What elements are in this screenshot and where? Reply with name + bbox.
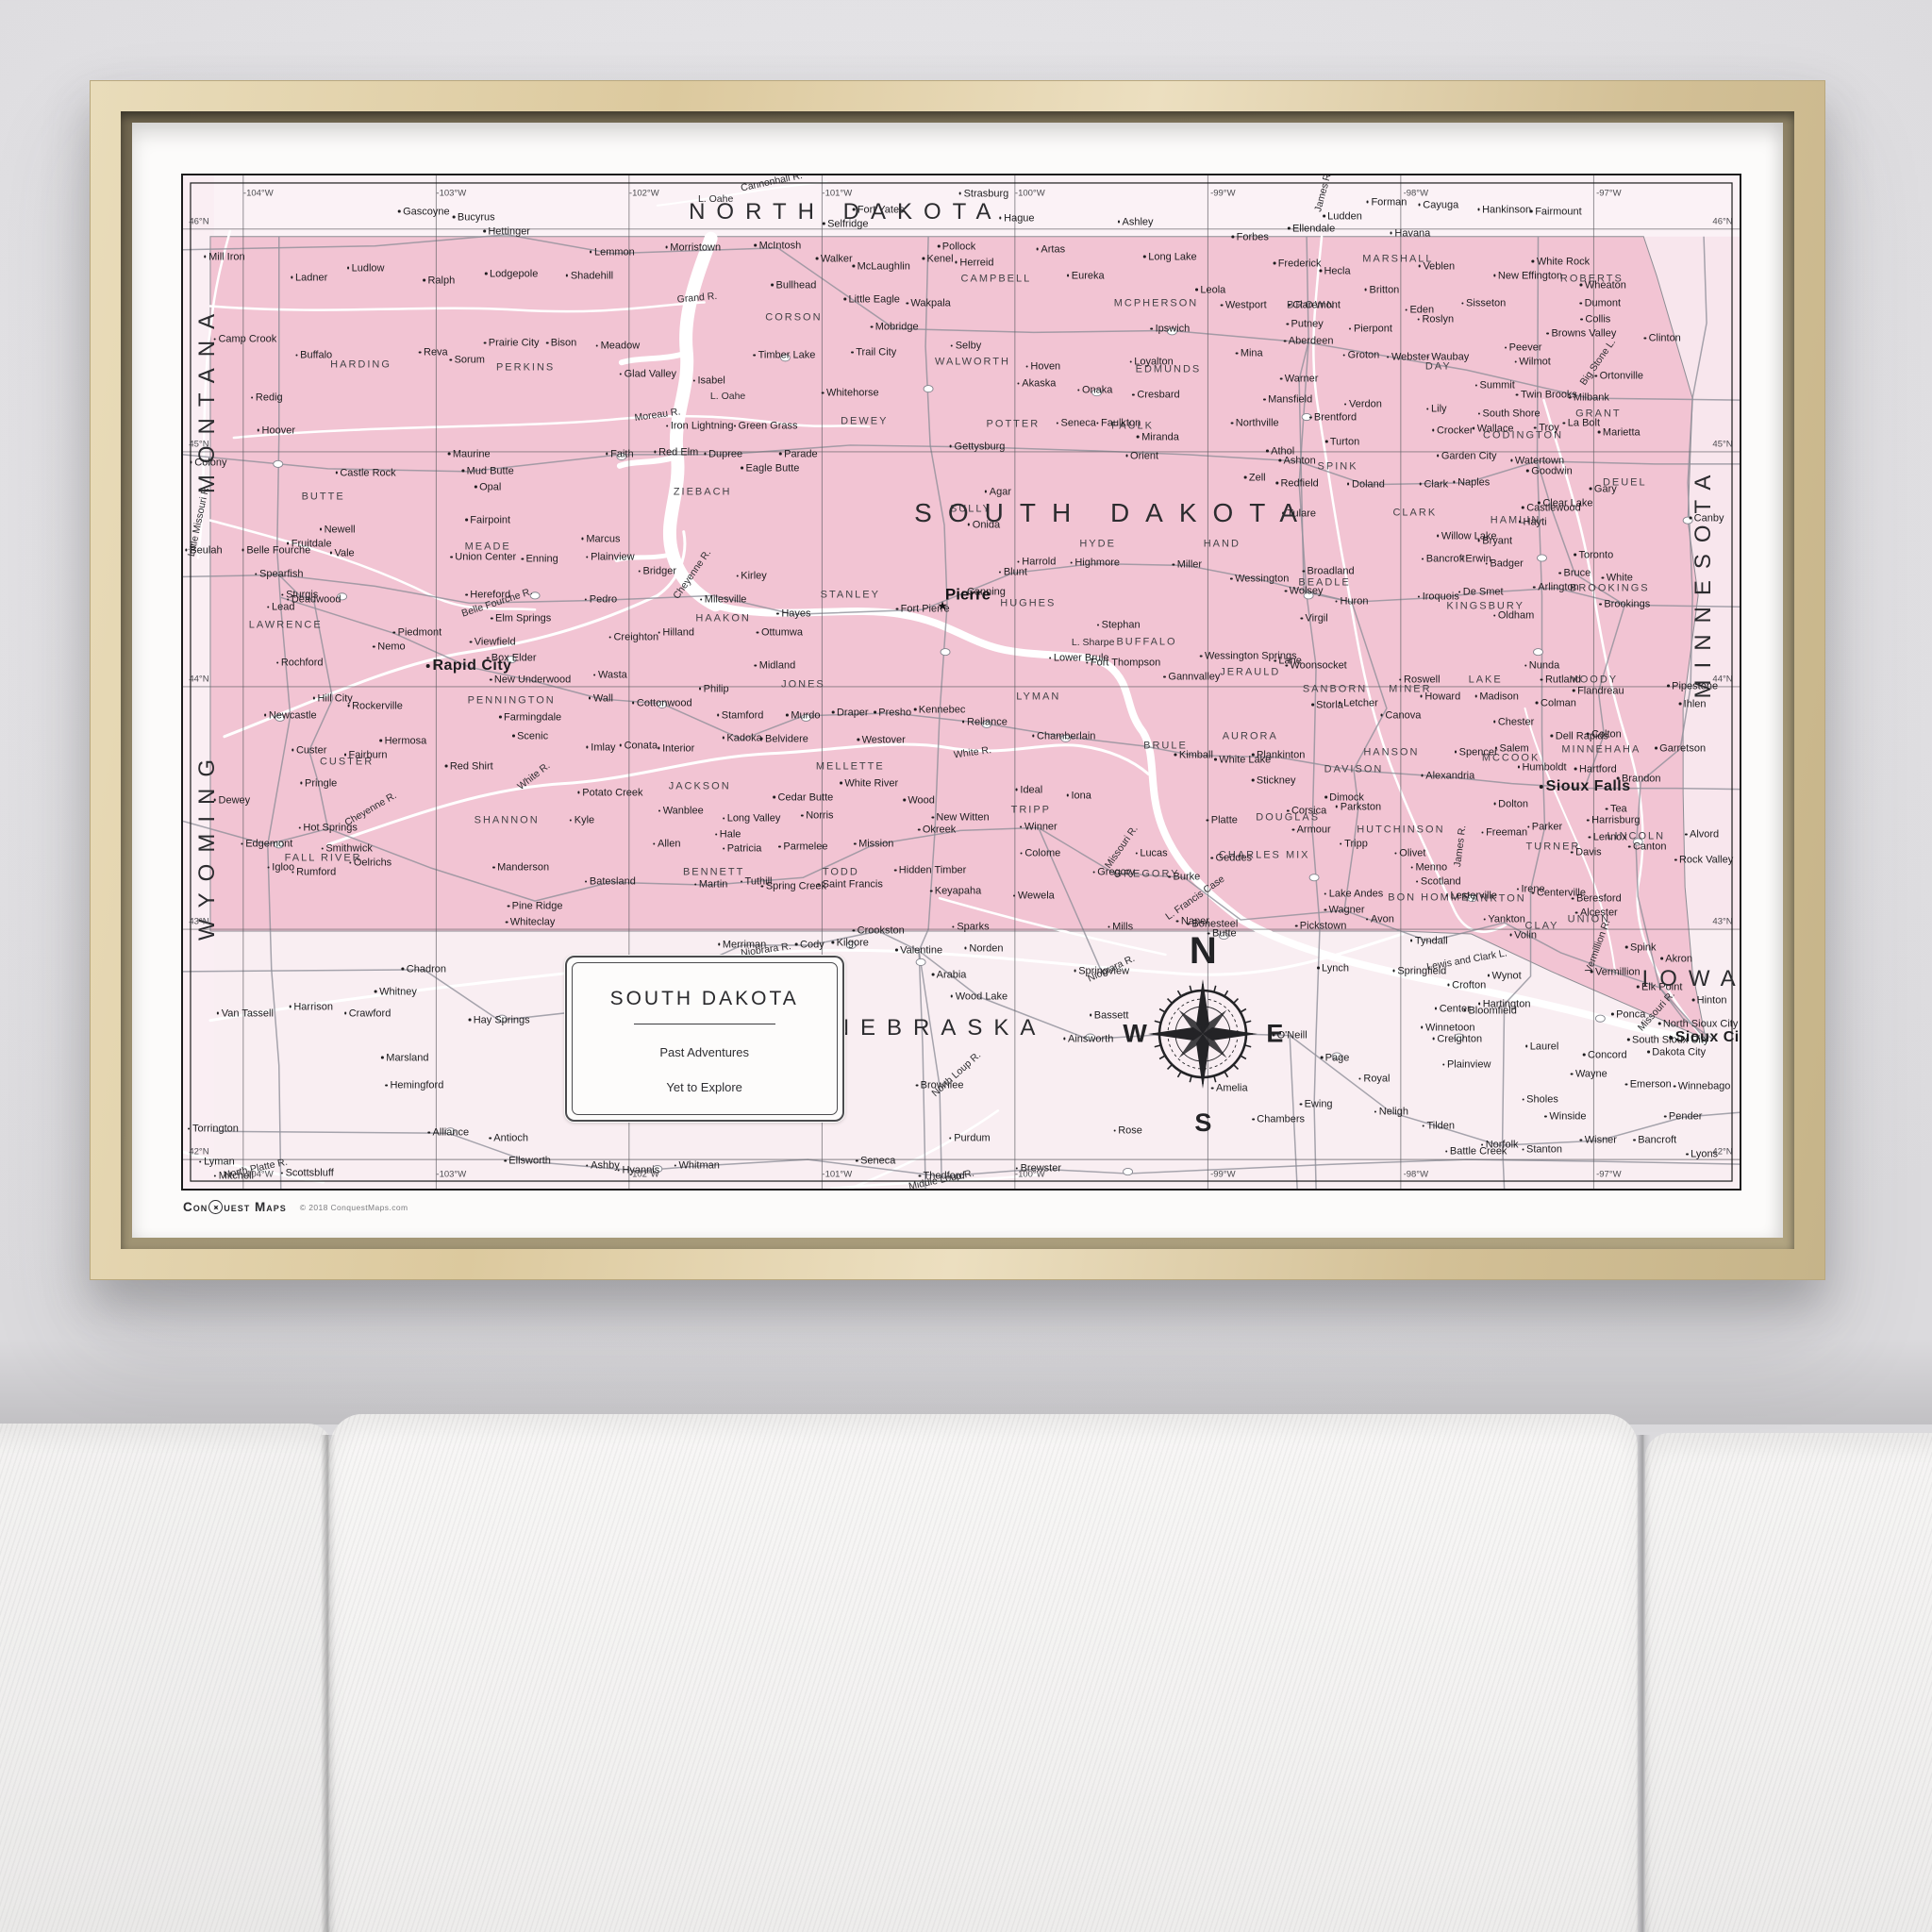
- town-label: Northville: [1231, 419, 1279, 429]
- town-label: Hilland: [658, 628, 694, 639]
- town-label: Saint Francis: [818, 880, 883, 891]
- town-label: Rutland: [1541, 675, 1581, 686]
- town-label: Draper: [832, 708, 869, 718]
- brand-name-left: Con: [183, 1200, 208, 1214]
- town-label: Winnetoon: [1421, 1023, 1475, 1033]
- county-label: CAMPBELL: [961, 274, 1032, 284]
- town-label: Walker: [816, 254, 853, 264]
- town-label: Wilmot: [1514, 358, 1551, 368]
- town-label: Webster: [1387, 353, 1430, 363]
- water-label: James R.: [1313, 174, 1334, 213]
- compass-icon: [208, 1200, 223, 1214]
- town-label: Keyapaha: [930, 887, 982, 897]
- map-canvas: HARDINGPERKINSCORSONCAMPBELLMCPHERSONBRO…: [132, 123, 1783, 1238]
- longitude-label: -99°W: [1210, 1170, 1236, 1179]
- town-label: Bridger: [639, 567, 676, 577]
- water-label: Grand R.: [676, 291, 717, 304]
- town-label: Cayuga: [1418, 200, 1458, 210]
- town-label: Vermillion: [1591, 967, 1641, 977]
- town-label: Murdo: [786, 710, 820, 721]
- county-label: CORSON: [765, 313, 822, 324]
- town-label: Forbes: [1232, 232, 1269, 242]
- town-label: Groton: [1343, 351, 1380, 361]
- county-label: JERAULD: [1220, 668, 1280, 678]
- town-label: Peever: [1505, 343, 1542, 354]
- town-label: Interior: [658, 743, 694, 754]
- water-label: James R.: [1453, 825, 1468, 868]
- town-label: Lily: [1426, 405, 1447, 415]
- town-label: Ainsworth: [1063, 1034, 1113, 1044]
- town-label: Claremont: [1288, 301, 1341, 311]
- town-label: Scenic: [512, 731, 548, 741]
- town-label: Tea: [1606, 805, 1627, 815]
- town-label: Arabia: [932, 970, 967, 980]
- town-label: New Witten: [931, 813, 989, 824]
- town-label: La Bolt: [1563, 419, 1600, 429]
- state-label: NEBRASKA: [833, 1017, 1047, 1040]
- longitude-label: -102°W: [629, 189, 659, 198]
- town-label: Selby: [951, 341, 982, 352]
- town-label: Wasta: [593, 671, 627, 681]
- town-label: Buffalo: [295, 351, 332, 361]
- town-label: Belvidere: [760, 734, 808, 744]
- town-label: Sisseton: [1461, 299, 1506, 309]
- town-label: Westover: [858, 735, 906, 745]
- town-label: Enning: [521, 555, 558, 565]
- town-label: Torrington: [188, 1124, 239, 1135]
- town-label: Eagle Butte: [741, 463, 800, 474]
- water-label: White R.: [516, 760, 552, 791]
- town-label: Chamberlain: [1032, 731, 1095, 741]
- couch-cushion-left: [0, 1424, 332, 1932]
- county-label: JACKSON: [669, 781, 731, 791]
- town-label: Stephan: [1097, 621, 1141, 631]
- town-label: Bison: [546, 339, 577, 349]
- town-label: Yankton: [1483, 915, 1525, 925]
- town-label: Presho: [874, 708, 911, 718]
- town-label: Cedar Butte: [774, 792, 834, 803]
- town-label: Timber Lake: [754, 351, 816, 361]
- town-label: Athol: [1266, 446, 1294, 457]
- town-label: Allen: [653, 840, 680, 850]
- town-label: Tyndall: [1410, 936, 1448, 946]
- town-label: Ellendale: [1288, 224, 1335, 234]
- town-label: McIntosh: [755, 241, 802, 251]
- town-label: Howard: [1420, 691, 1460, 702]
- town-label: Bancroft: [1422, 555, 1465, 565]
- town-label: Britton: [1365, 285, 1400, 295]
- town-label: Wanblee: [658, 807, 704, 817]
- town-label: Armour: [1292, 825, 1331, 836]
- town-label: Platte: [1207, 816, 1238, 826]
- longitude-label: -101°W: [822, 1170, 852, 1179]
- county-label: HAAKON: [695, 614, 750, 625]
- town-label: Loyalton: [1129, 358, 1174, 368]
- brand-name-right: uest Maps: [224, 1200, 287, 1214]
- town-label: Reliance: [962, 717, 1008, 727]
- water-label: White R.: [953, 745, 991, 760]
- town-label: Lake Andes: [1324, 890, 1384, 900]
- latitude-label: 42°N: [1712, 1147, 1732, 1157]
- town-label: Cresbard: [1132, 391, 1179, 401]
- county-label: LAKE: [1469, 675, 1503, 686]
- cushion-seam-left: [321, 1435, 336, 1932]
- town-label: Brookings: [1599, 600, 1650, 610]
- town-label: Wagner: [1324, 906, 1364, 916]
- water-label: L. Sharpe: [1072, 638, 1115, 648]
- town-label: Oldham: [1493, 611, 1535, 622]
- town-label: Highmore: [1070, 558, 1120, 569]
- town-label: Wewela: [1013, 891, 1055, 902]
- water-label: L. Oahe: [710, 391, 745, 402]
- water-label: Missouri R.: [1103, 824, 1140, 871]
- title-divider: [634, 1024, 775, 1025]
- town-label: Chadron: [402, 964, 446, 974]
- town-label: Antioch: [489, 1134, 528, 1144]
- brand-copyright: © 2018 ConquestMaps.com: [300, 1203, 408, 1212]
- town-label: Mud Butte: [462, 466, 514, 476]
- town-label: Rochford: [276, 658, 324, 669]
- longitude-label: -103°W: [436, 1170, 466, 1179]
- town-label: Verdon: [1344, 400, 1382, 410]
- town-label: Doland: [1347, 479, 1385, 490]
- town-label: Bryant: [1477, 536, 1512, 546]
- longitude-label: -98°W: [1404, 1170, 1429, 1179]
- town-label: White River: [840, 778, 898, 789]
- town-label: De Smet: [1458, 588, 1504, 598]
- town-label: Valentine: [895, 945, 942, 956]
- town-label: Farmingdale: [499, 712, 561, 723]
- town-label: Frederick: [1274, 258, 1322, 269]
- county-label: PERKINS: [496, 363, 555, 374]
- longitude-label: -102°W: [629, 1170, 659, 1179]
- town-label: Avon: [1366, 915, 1394, 925]
- town-label: Hayti: [1519, 517, 1547, 527]
- county-label: HARDING: [330, 360, 391, 371]
- town-label: Sparks: [952, 923, 989, 933]
- town-label: Clark: [1419, 479, 1448, 490]
- town-label: Hidden Timber: [894, 866, 967, 876]
- couch: [0, 1410, 1932, 1932]
- county-label: AURORA: [1223, 731, 1278, 741]
- town-label: Reva: [419, 348, 448, 358]
- town-label: Dakota City: [1647, 1047, 1706, 1058]
- town-label: Colome: [1020, 849, 1060, 859]
- town-label: Woonsocket: [1285, 661, 1346, 672]
- town-label: Wood Lake: [951, 991, 1008, 1002]
- town-label: Shadehill: [566, 271, 613, 281]
- town-label: Sorum: [450, 356, 485, 366]
- frame-floater-gap: HARDINGPERKINSCORSONCAMPBELLMCPHERSONBRO…: [121, 111, 1794, 1249]
- latitude-label: 45°N: [189, 440, 208, 449]
- town-label: Norden: [964, 943, 1003, 954]
- town-label: Burke: [1169, 873, 1201, 883]
- town-label: Wood: [903, 795, 935, 806]
- town-label: Marcus: [581, 534, 620, 544]
- town-label: Meadow: [596, 341, 641, 352]
- town-label: Ashby: [586, 1161, 620, 1172]
- town-label: Plainview: [1442, 1060, 1491, 1071]
- town-label: Pickstown: [1295, 922, 1347, 932]
- town-label: Hermosa: [380, 736, 427, 746]
- water-label: Lewis and Clark L.: [1425, 948, 1507, 972]
- town-label: Imlay: [586, 742, 615, 753]
- town-label: Alcester: [1575, 908, 1618, 919]
- town-label: Brentford: [1309, 413, 1357, 424]
- town-label: North Sioux City: [1658, 1019, 1738, 1029]
- town-label: Ashley: [1118, 217, 1154, 227]
- county-label: BUFFALO: [1116, 638, 1176, 648]
- county-label: HUTCHINSON: [1357, 825, 1444, 836]
- town-label: Faith: [606, 449, 633, 459]
- town-label: Martin: [694, 880, 728, 891]
- town-label: Chester: [1493, 717, 1535, 727]
- town-label: Clinton: [1644, 334, 1681, 344]
- town-label: Milesville: [700, 595, 747, 606]
- longitude-label: -100°W: [1015, 189, 1045, 198]
- town-label: Miranda: [1137, 432, 1179, 442]
- county-label: HAND: [1204, 539, 1241, 549]
- town-label: Edgemont: [241, 840, 292, 850]
- town-label: Badger: [1485, 559, 1523, 570]
- town-label: Letcher: [1339, 698, 1378, 708]
- town-label: Morristown: [665, 242, 721, 253]
- town-label: Winnebago: [1674, 1082, 1731, 1092]
- town-label: Veblen: [1418, 261, 1455, 272]
- town-label: Gregory: [1092, 868, 1135, 878]
- town-label: Wessington: [1230, 575, 1289, 585]
- town-label: Crookston: [853, 926, 905, 937]
- town-label: Winner: [1020, 823, 1058, 833]
- town-label: Page: [1321, 1053, 1350, 1063]
- town-label: Rock Valley: [1674, 856, 1733, 866]
- town-label: Whitehorse: [822, 389, 879, 399]
- town-label: Ideal: [1015, 785, 1042, 795]
- town-label: Kadoka: [722, 733, 761, 743]
- town-label: Bruce: [1559, 569, 1591, 579]
- town-label: Iona: [1066, 791, 1091, 801]
- town-label: Artas: [1036, 244, 1065, 255]
- town-label: Ladner: [291, 273, 327, 283]
- town-label: Laurel: [1525, 1041, 1559, 1052]
- town-label: Iroquois: [1418, 592, 1459, 603]
- town-label: Virgil: [1300, 614, 1327, 625]
- town-label: Bancroft: [1633, 1136, 1676, 1146]
- county-label: MELLETTE: [816, 761, 885, 772]
- town-label: Strasburg: [959, 189, 1009, 199]
- longitude-label: -100°W: [1015, 1170, 1045, 1179]
- town-label: Castlewood: [1522, 503, 1580, 513]
- town-label: New Underwood: [490, 675, 571, 686]
- county-label: SPINK: [1318, 461, 1358, 472]
- county-label: POTTER: [987, 420, 1041, 430]
- map-title: SOUTH DAKOTA: [610, 988, 799, 1010]
- town-label: Scottsbluff: [281, 1169, 334, 1179]
- town-label: Sioux City: [1669, 1030, 1741, 1045]
- town-label: Lucas: [1135, 849, 1167, 859]
- town-label: Ludlow: [347, 263, 385, 274]
- town-label: Naper: [1176, 917, 1209, 927]
- state-label: IOWA: [1642, 968, 1741, 991]
- town-label: Parkston: [1336, 802, 1381, 812]
- town-label: Kyle: [570, 816, 594, 826]
- town-label: Philip: [699, 684, 729, 694]
- town-label: Geddes: [1211, 854, 1253, 864]
- couch-cushion-right: [1645, 1433, 1932, 1932]
- town-label: Lemmon: [590, 247, 635, 258]
- longitude-label: -103°W: [436, 189, 466, 198]
- town-label: Nemo: [373, 642, 405, 653]
- town-label: Fairburn: [344, 750, 388, 760]
- longitude-label: -97°W: [1596, 1170, 1622, 1179]
- town-label: Davis: [1571, 848, 1602, 858]
- state-label: WYOMING: [196, 748, 219, 941]
- county-label: BROOKINGS: [1570, 584, 1650, 594]
- town-label: Hemingford: [385, 1081, 443, 1091]
- town-label: Sholes: [1522, 1095, 1558, 1106]
- town-label: Parade: [779, 449, 817, 459]
- town-label: Stanton: [1522, 1145, 1562, 1156]
- town-label: South Shore: [1478, 409, 1541, 420]
- town-label: Browns Valley: [1546, 329, 1616, 340]
- town-label: Roslyn: [1417, 315, 1454, 325]
- town-label: Marietta: [1598, 427, 1641, 438]
- town-label: Warner: [1280, 375, 1319, 385]
- town-label: Manderson: [492, 863, 549, 874]
- town-label: Isabel: [692, 376, 724, 387]
- legend-yet-to-explore: Yet to Explore: [666, 1080, 741, 1094]
- town-label: New Effington: [1493, 271, 1562, 281]
- town-label: Gary: [1590, 484, 1617, 494]
- town-label: Putney: [1286, 320, 1323, 330]
- town-label: Trail City: [851, 348, 896, 358]
- town-label: Cody: [795, 940, 824, 950]
- county-label: TRIPP: [1011, 806, 1051, 816]
- town-label: Bucyrus: [453, 212, 495, 223]
- town-label: Spearfish: [255, 570, 303, 580]
- county-label: SHANNON: [475, 816, 540, 826]
- town-label: Fairpoint: [465, 515, 510, 525]
- compass-rose: N S W E: [1123, 930, 1283, 1138]
- town-label: Akaska: [1017, 379, 1056, 390]
- town-label: Potato Creek: [577, 788, 642, 798]
- county-label: SANBORN: [1303, 684, 1367, 694]
- town-label: Gannvalley: [1163, 673, 1220, 683]
- town-label: Kilgore: [832, 938, 869, 948]
- town-label: Newell: [320, 525, 356, 535]
- town-label: Castle Rock: [335, 468, 395, 478]
- town-label: Neligh: [1374, 1108, 1408, 1118]
- town-label: Hoover: [258, 425, 295, 436]
- town-label: Mission: [854, 840, 893, 850]
- capital-label: Pierre: [945, 587, 991, 603]
- town-label: Lead: [267, 603, 294, 613]
- town-label: Ralph: [423, 275, 455, 286]
- latitude-label: 46°N: [189, 217, 208, 226]
- town-label: Ihlen: [1679, 699, 1707, 709]
- longitude-label: -99°W: [1210, 189, 1236, 198]
- town-label: Hayes: [776, 609, 810, 620]
- town-label: Lennox: [1589, 833, 1627, 843]
- town-label: Forman: [1366, 197, 1407, 208]
- town-label: Ellsworth: [504, 1157, 551, 1167]
- town-label: Ottumwa: [757, 628, 803, 639]
- town-label: Waubay: [1426, 353, 1469, 363]
- county-label: STANLEY: [821, 591, 880, 601]
- town-label: Long Lake: [1143, 252, 1196, 262]
- town-label: Van Tassell: [217, 1008, 274, 1019]
- town-label: Ipswich: [1151, 325, 1191, 335]
- latitude-label: 42°N: [189, 1147, 208, 1157]
- county-label: BENNETT: [683, 868, 744, 878]
- town-label: Stickney: [1252, 775, 1296, 786]
- town-label: Deadwood: [287, 595, 341, 606]
- town-label: Parmelee: [778, 842, 827, 853]
- county-label: MCPHERSON: [1114, 299, 1199, 309]
- town-label: Pender: [1664, 1112, 1702, 1123]
- town-label: Hartington: [1478, 999, 1531, 1009]
- county-label: JONES: [781, 679, 825, 690]
- town-label: Rockerville: [347, 701, 403, 711]
- town-label: Alliance: [428, 1128, 470, 1139]
- town-label: Toronto: [1574, 550, 1614, 560]
- county-label: PENNINGTON: [468, 695, 556, 706]
- town-label: Purdum: [949, 1134, 991, 1144]
- longitude-label: -104°W: [243, 1170, 274, 1179]
- town-label: Wall: [589, 693, 613, 704]
- county-label: ZIEBACH: [674, 487, 732, 497]
- town-label: Mill Iron: [204, 252, 245, 262]
- town-label: Crofton: [1447, 980, 1486, 991]
- town-label: Redfield: [1275, 478, 1318, 489]
- town-label: Nunda: [1524, 661, 1559, 672]
- town-label: Conata: [620, 741, 658, 751]
- latitude-label: 45°N: [1712, 440, 1732, 449]
- town-label: Dolton: [1493, 799, 1528, 809]
- county-label: BUTTE: [302, 491, 345, 502]
- town-label: Hecla: [1319, 266, 1350, 276]
- town-label: Glad Valley: [620, 370, 676, 380]
- town-label: Crawford: [344, 1008, 391, 1019]
- town-label: Gettysburg: [950, 441, 1006, 452]
- town-label: Colman: [1536, 698, 1576, 708]
- town-label: Green Grass: [734, 422, 798, 432]
- town-label: Wheaton: [1580, 280, 1626, 291]
- title-box-inner: SOUTH DAKOTA Past Adventures Yet to Expl…: [572, 962, 838, 1115]
- town-label: Goodwin: [1526, 466, 1572, 476]
- town-label: Pine Ridge: [508, 902, 563, 912]
- town-label: Havana: [1390, 228, 1430, 239]
- compass-south-label: S: [1194, 1108, 1211, 1138]
- longitude-label: -98°W: [1404, 189, 1429, 198]
- longitude-label: -101°W: [822, 189, 852, 198]
- town-label: Hinton: [1692, 995, 1727, 1006]
- town-label: Wisner: [1580, 1136, 1617, 1146]
- town-label: Winside: [1544, 1112, 1586, 1123]
- map-title-box: SOUTH DAKOTA Past Adventures Yet to Expl…: [565, 956, 844, 1122]
- town-label: Alvord: [1685, 830, 1719, 841]
- town-label: Patricia: [723, 844, 762, 855]
- town-label: Tripp: [1340, 840, 1368, 850]
- town-label: Parker: [1527, 823, 1562, 833]
- town-label: Huron: [1336, 597, 1369, 608]
- brand-name: Conuest Maps: [183, 1200, 287, 1214]
- county-label: LAWRENCE: [249, 621, 323, 631]
- town-label: Concord: [1583, 1050, 1627, 1060]
- town-label: Long Valley: [723, 814, 781, 824]
- town-label: Iron Lightning: [666, 422, 734, 432]
- compass-rose-icon: [1141, 973, 1264, 1095]
